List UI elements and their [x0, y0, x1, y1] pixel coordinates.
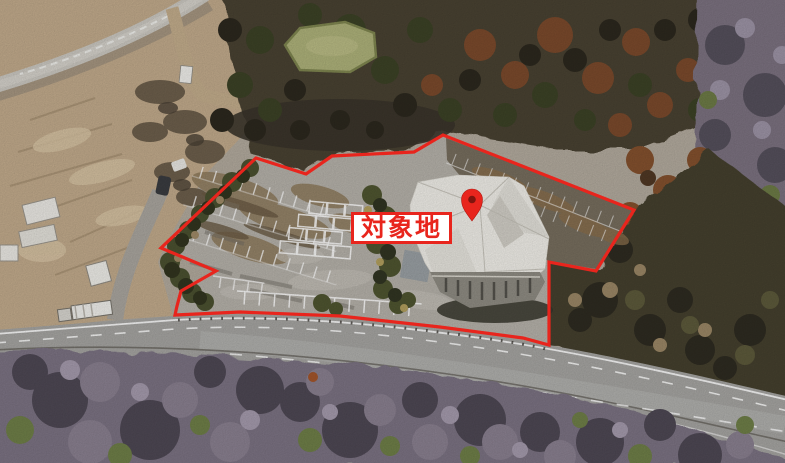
aerial-site-map: 対象地 [0, 0, 785, 463]
site-label: 対象地 [351, 212, 452, 244]
